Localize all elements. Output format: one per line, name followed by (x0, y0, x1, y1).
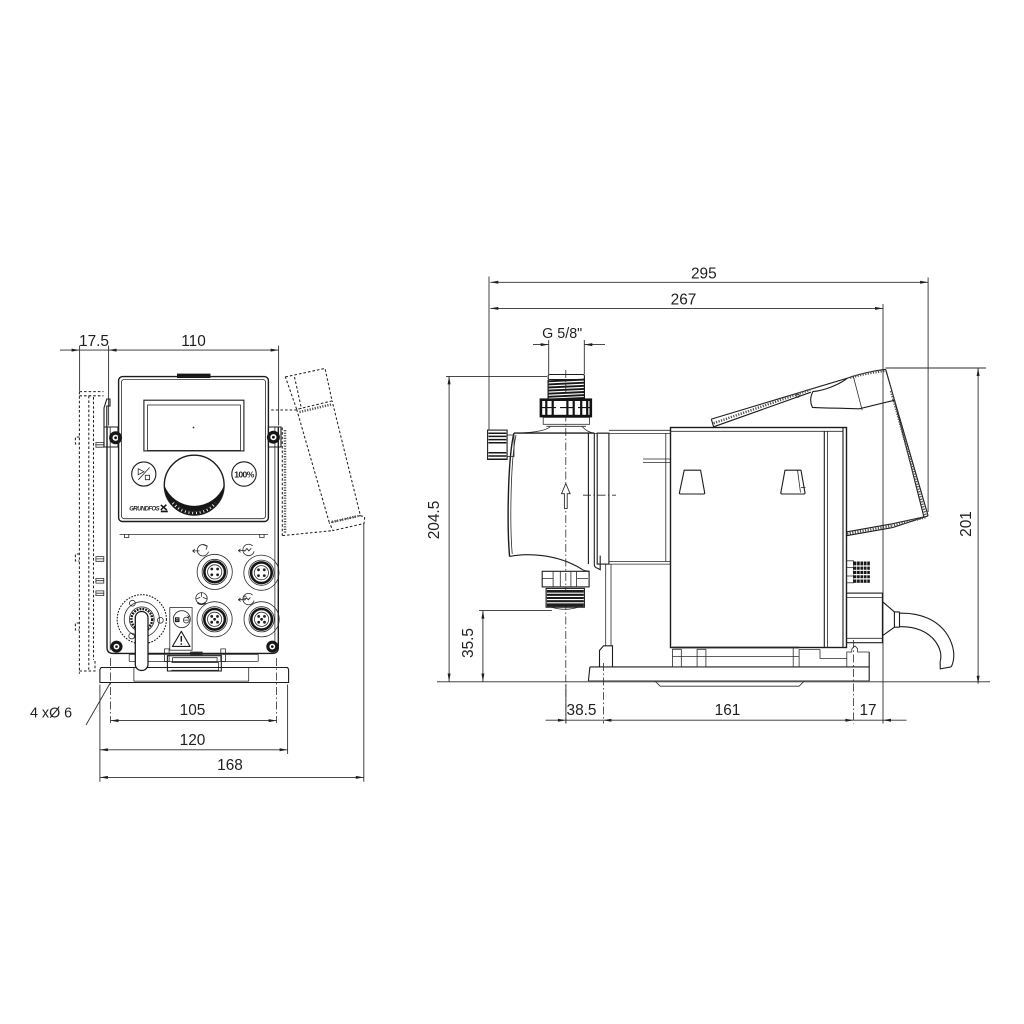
svg-text:267: 267 (671, 292, 697, 309)
svg-text:G 5/8": G 5/8" (542, 326, 582, 342)
svg-text:110: 110 (181, 333, 206, 350)
svg-text:17: 17 (859, 702, 876, 719)
svg-text:GRUNDFOS: GRUNDFOS (129, 506, 159, 512)
svg-text:17.5: 17.5 (79, 333, 109, 350)
svg-text:204.5: 204.5 (426, 501, 443, 540)
svg-text:201: 201 (958, 511, 975, 537)
svg-text:38.5: 38.5 (567, 702, 597, 719)
svg-text:161: 161 (715, 702, 741, 719)
svg-text:35.5: 35.5 (460, 628, 477, 658)
svg-text:100%: 100% (234, 470, 255, 480)
svg-text:120: 120 (180, 732, 206, 749)
svg-text:105: 105 (180, 702, 206, 719)
svg-text:4 xØ 6: 4 xØ 6 (30, 706, 72, 722)
svg-text:168: 168 (217, 757, 243, 774)
svg-text:295: 295 (691, 266, 717, 283)
